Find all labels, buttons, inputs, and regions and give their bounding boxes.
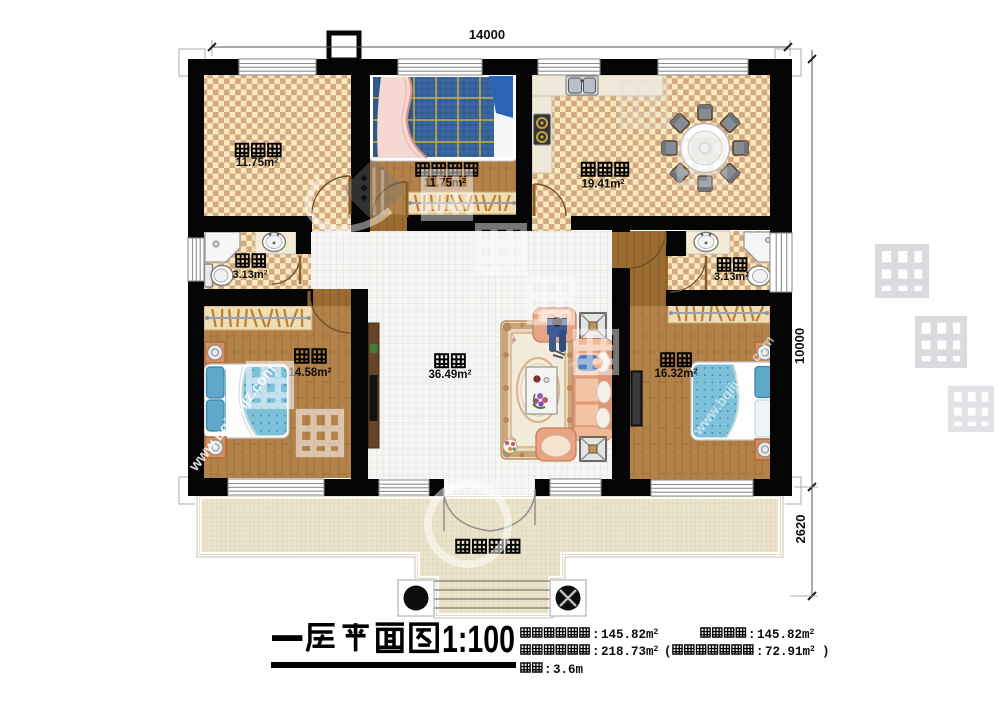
svg-text:1:100: 1:100 bbox=[442, 619, 515, 661]
svg-text::: : bbox=[592, 645, 600, 659]
svg-text:3.13m2: 3.13m2 bbox=[714, 271, 749, 283]
svg-text:14000: 14000 bbox=[469, 27, 505, 42]
svg-text::: : bbox=[756, 645, 764, 659]
svg-text:145.82m2: 145.82m2 bbox=[757, 628, 815, 642]
svg-text::: : bbox=[748, 628, 756, 642]
svg-text:10000: 10000 bbox=[792, 328, 807, 364]
svg-text::: : bbox=[544, 663, 552, 677]
svg-text::: : bbox=[592, 628, 600, 642]
svg-text:11.75m2: 11.75m2 bbox=[236, 156, 278, 169]
svg-text:19.41m2: 19.41m2 bbox=[582, 178, 625, 191]
svg-text:14.58m2: 14.58m2 bbox=[289, 366, 332, 379]
svg-text:3.6m: 3.6m bbox=[553, 663, 584, 677]
svg-text:145.82m2: 145.82m2 bbox=[601, 628, 659, 642]
svg-text:16.32m2: 16.32m2 bbox=[655, 367, 698, 380]
svg-text:218.73m2: 218.73m2 bbox=[601, 645, 659, 659]
svg-text:3.13m2: 3.13m2 bbox=[233, 269, 268, 281]
svg-text:2620: 2620 bbox=[793, 515, 808, 544]
svg-text:): ) bbox=[822, 645, 830, 659]
svg-text:72.91m2: 72.91m2 bbox=[765, 645, 815, 659]
svg-text:36.49m2: 36.49m2 bbox=[429, 368, 472, 381]
svg-text:(: ( bbox=[664, 645, 672, 659]
